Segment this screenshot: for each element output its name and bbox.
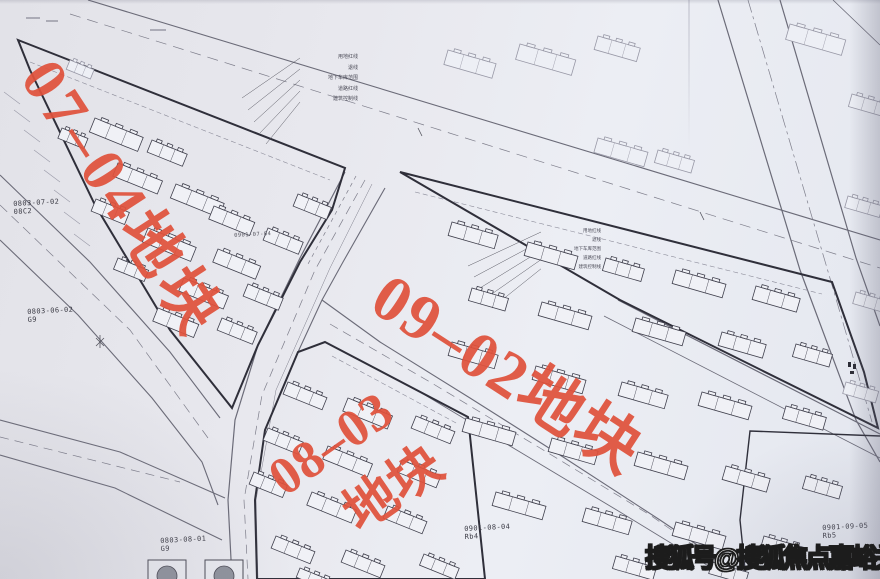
- building-footprint: [516, 41, 577, 75]
- callout-label: 道路红线: [541, 256, 601, 261]
- building-footprint: [538, 299, 593, 330]
- callout-stack-right: 用地红线退线地下车库范围道路红线建筑控制线: [541, 229, 601, 274]
- building-footprint: [147, 137, 188, 166]
- callout-label: 道路红线: [288, 87, 358, 92]
- site-plan-map: 0803-07-02 08C20803-06-02 G90803-08-01 G…: [0, 0, 880, 579]
- building-footprint: [420, 551, 461, 579]
- building-footprint: [752, 283, 801, 312]
- building-footprint: [848, 91, 880, 117]
- building-footprint: [283, 379, 328, 410]
- parcel-id-0803-08-01: 0803-08-01 G9: [160, 535, 207, 553]
- callout-label: 建筑控制线: [541, 265, 601, 270]
- callout-label: 用地红线: [288, 55, 358, 60]
- callout-stack-top: 用地红线退线地下车库范围道路红线建筑控制线: [288, 55, 358, 108]
- edge-smudges: [26, 18, 166, 30]
- callout-label: 退线: [541, 238, 601, 243]
- tree-symbol: [205, 560, 243, 579]
- callout-label: 地下车库范围: [288, 76, 358, 81]
- building-footprint: [845, 193, 880, 217]
- building-footprint: [634, 449, 689, 480]
- building-footprint: [296, 565, 334, 579]
- tree-symbol: [148, 560, 186, 579]
- callout-label: 建筑控制线: [288, 97, 358, 102]
- building-footprint: [672, 267, 727, 298]
- building-footprint: [243, 281, 284, 310]
- callout-label: 地下车库范围: [541, 247, 601, 252]
- parcel-id-0803-06-02: 0803-06-02 G9: [27, 306, 74, 324]
- building-footprint: [802, 473, 843, 499]
- building-footprint: [782, 403, 827, 430]
- sohu-watermark: 搜狐号@搜狐焦点嘉峪关站: [645, 538, 880, 575]
- building-footprint: [582, 505, 633, 535]
- callout-label: 用地红线: [541, 229, 601, 234]
- building-footprint: [602, 255, 645, 281]
- building-footprint: [654, 147, 695, 173]
- building-footprint: [293, 191, 332, 219]
- building-footprint: [209, 203, 256, 235]
- building-footprint: [618, 379, 669, 409]
- building-footprint: [341, 547, 386, 578]
- tree-symbols: [148, 560, 243, 579]
- building-footprint: [698, 389, 753, 420]
- building-footprint: [492, 489, 547, 520]
- building-footprint: [271, 533, 316, 564]
- building-footprint: [468, 285, 509, 311]
- building-footprint: [444, 47, 497, 78]
- building-footprint: [853, 289, 880, 313]
- building-footprint: [594, 33, 641, 61]
- parcel-id-0803-07-02: 0803-07-02 08C2: [13, 198, 60, 216]
- building-footprint: [718, 329, 767, 358]
- building-footprint: [263, 225, 304, 254]
- building-footprint: [792, 341, 833, 367]
- callout-label: 退线: [288, 66, 358, 71]
- building-footprint: [448, 219, 499, 249]
- parcel-id-0901-08-04: 0901-08-04 Rb4: [464, 523, 511, 541]
- building-footprint: [213, 246, 262, 279]
